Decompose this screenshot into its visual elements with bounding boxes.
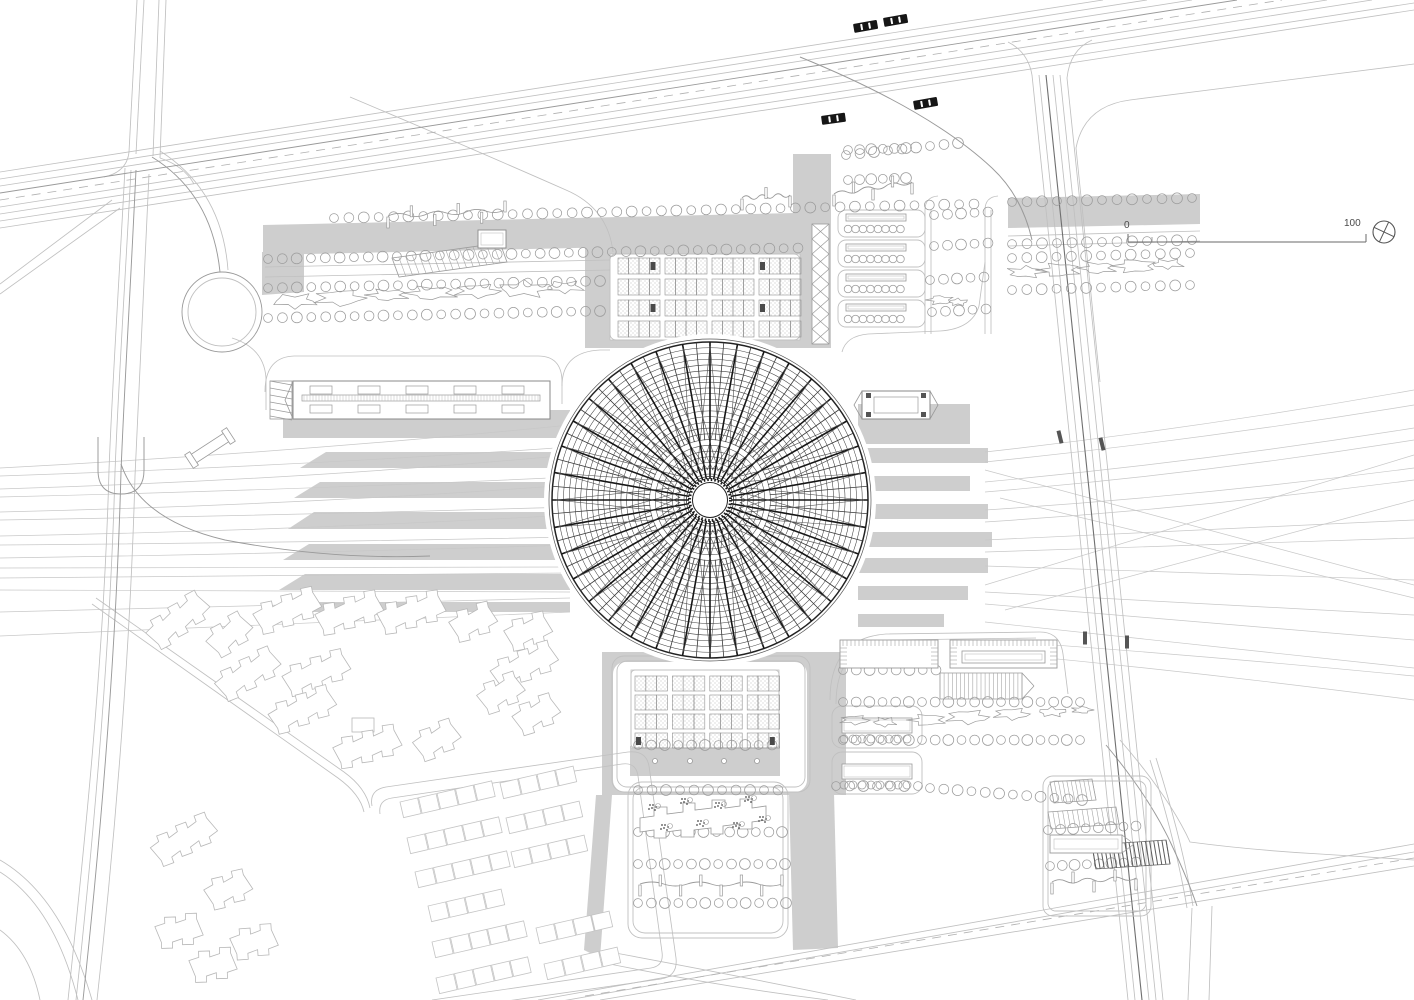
covered-walkway-truss [812, 224, 829, 344]
rotunda-roof-plan [544, 334, 876, 666]
scale-end-label: 100 [1344, 219, 1361, 229]
site-plan-canvas: 0 100 [0, 0, 1414, 1000]
bus-terminal-buildings [840, 640, 1057, 668]
scale-bar [1128, 234, 1366, 242]
site-plan-drawing [0, 0, 1414, 1000]
garage-rows [400, 766, 621, 993]
north-compass-icon [1373, 221, 1395, 243]
scale-start-label: 0 [1124, 221, 1130, 231]
